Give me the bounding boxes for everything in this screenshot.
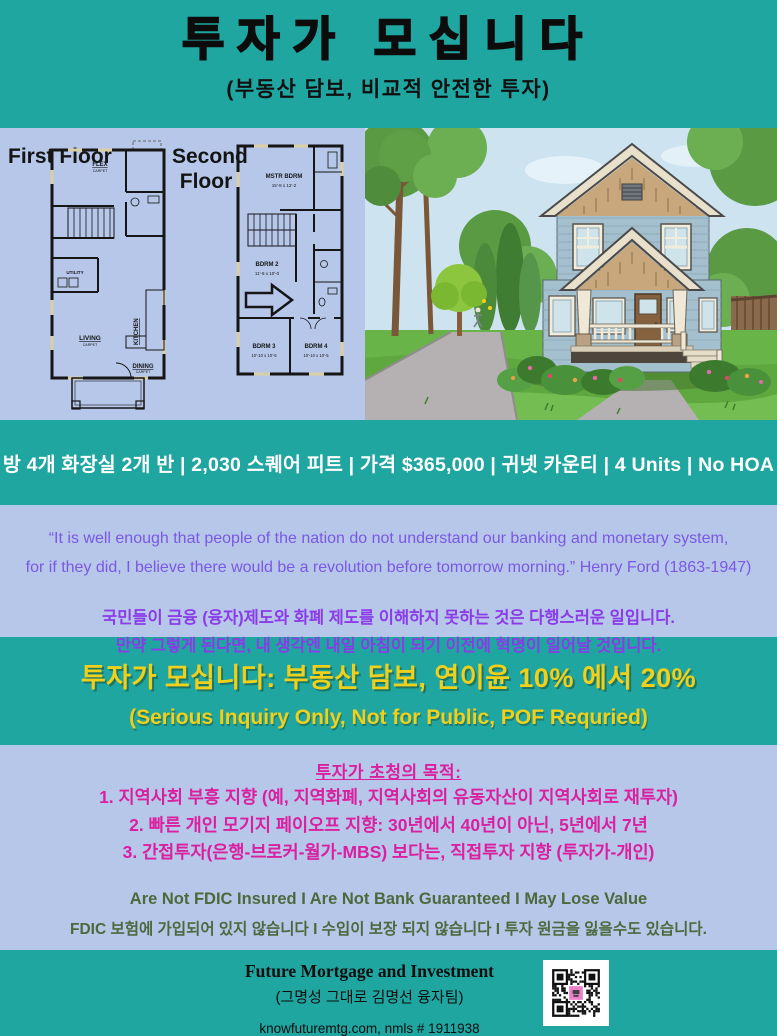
room-sublabel: CARPET xyxy=(83,343,98,347)
quote-english: “It is well enough that people of the na… xyxy=(0,524,777,582)
purpose-panel: 투자가 초청의 목적: 1. 지역사회 부흥 지향 (예, 지역화폐, 지역사회… xyxy=(0,745,777,950)
quote-panel: “It is well enough that people of the na… xyxy=(0,505,777,637)
room-label: BDRM 3 xyxy=(252,344,276,350)
header: 투자가 모십니다 (부동산 담보, 비교적 안전한 투자) xyxy=(0,0,777,128)
room-label: UTILITY xyxy=(66,270,83,275)
qr-code xyxy=(543,960,609,1026)
room-label: MSTR BDRM xyxy=(266,174,303,180)
purpose-item: 2. 빠른 개인 모기지 페이오프 지향: 30년에서 40년이 아닌, 5년에… xyxy=(0,812,777,839)
flyer: 투자가 모십니다 (부동산 담보, 비교적 안전한 투자) First Floo… xyxy=(0,0,777,1036)
info-bar: 방 4개 화장실 2개 반 | 2,030 스퀘어 피트 | 가격 $365,0… xyxy=(0,420,777,505)
room-label: FLEX xyxy=(92,162,107,168)
property-summary: 방 4개 화장실 2개 반 | 2,030 스퀘어 피트 | 가격 $365,0… xyxy=(3,448,774,477)
offer-headline: 투자가 모십니다: 부동산 담보, 연이윤 10% 에서 20% xyxy=(0,656,777,695)
first-floor-plan: FLEX CARPET UTILITY KITCHEN LIVING CARPE… xyxy=(38,140,178,412)
media-row: First Floor Second Floor xyxy=(0,128,777,420)
second-floor-plan: MSTR BDRM 15'-8 x 12'-2 BDRM 2 11'-8 x 1… xyxy=(234,142,346,378)
room-dims: 10'-10 x 10'-5 xyxy=(251,353,277,358)
offer-subheadline: (Serious Inquiry Only, Not for Public, P… xyxy=(0,706,777,730)
page-subtitle: (부동산 담보, 비교적 안전한 투자) xyxy=(0,73,777,103)
room-dims: 15'-8 x 12'-2 xyxy=(272,183,297,188)
room-sublabel: CARPET xyxy=(136,370,151,374)
footer: Future Mortgage and Investment (그명성 그대로 … xyxy=(0,950,777,1036)
house-illustration xyxy=(365,128,777,420)
contact-line: knowfuturemtg.com, nmls # 1911938 xyxy=(0,1021,758,1036)
room-dims: 11'-8 x 10'-0 xyxy=(255,271,280,276)
disclaimer-english: Are Not FDIC Insured I Are Not Bank Guar… xyxy=(0,890,777,909)
room-label: LIVING xyxy=(79,335,101,342)
floorplans-panel: First Floor Second Floor xyxy=(0,128,365,420)
page-title: 투자가 모십니다 xyxy=(0,10,777,68)
room-label: BDRM 4 xyxy=(304,344,328,350)
team-name: (그명성 그대로 김명선 융자팀) xyxy=(0,986,758,1007)
footer-text: Future Mortgage and Investment (그명성 그대로 … xyxy=(0,961,758,1036)
room-dims: 10'-10 x 10'-5 xyxy=(303,353,329,358)
room-label: KITCHEN xyxy=(134,318,140,345)
room-label: BDRM 2 xyxy=(255,262,279,268)
purpose-heading: 투자가 초청의 목적: xyxy=(0,758,777,783)
quote-korean: 국민들이 금융 (융자)제도와 화폐 제도를 이해하지 못하는 것은 다행스러운… xyxy=(0,604,777,660)
company-name: Future Mortgage and Investment xyxy=(0,961,758,982)
second-floor-label: Second Floor xyxy=(172,144,240,194)
purpose-item: 1. 지역사회 부흥 지향 (예, 지역화폐, 지역사회의 유동자산이 지역사회… xyxy=(0,784,777,811)
room-sublabel: CARPET xyxy=(93,169,108,173)
disclaimer-korean: FDIC 보험에 가입되어 있지 않습니다 I 수입이 보장 되지 않습니다 I… xyxy=(0,917,777,939)
purpose-item: 3. 간접투자(은행-브로커-월가-MBS) 보다는, 직접투자 지향 (투자가… xyxy=(0,839,777,866)
